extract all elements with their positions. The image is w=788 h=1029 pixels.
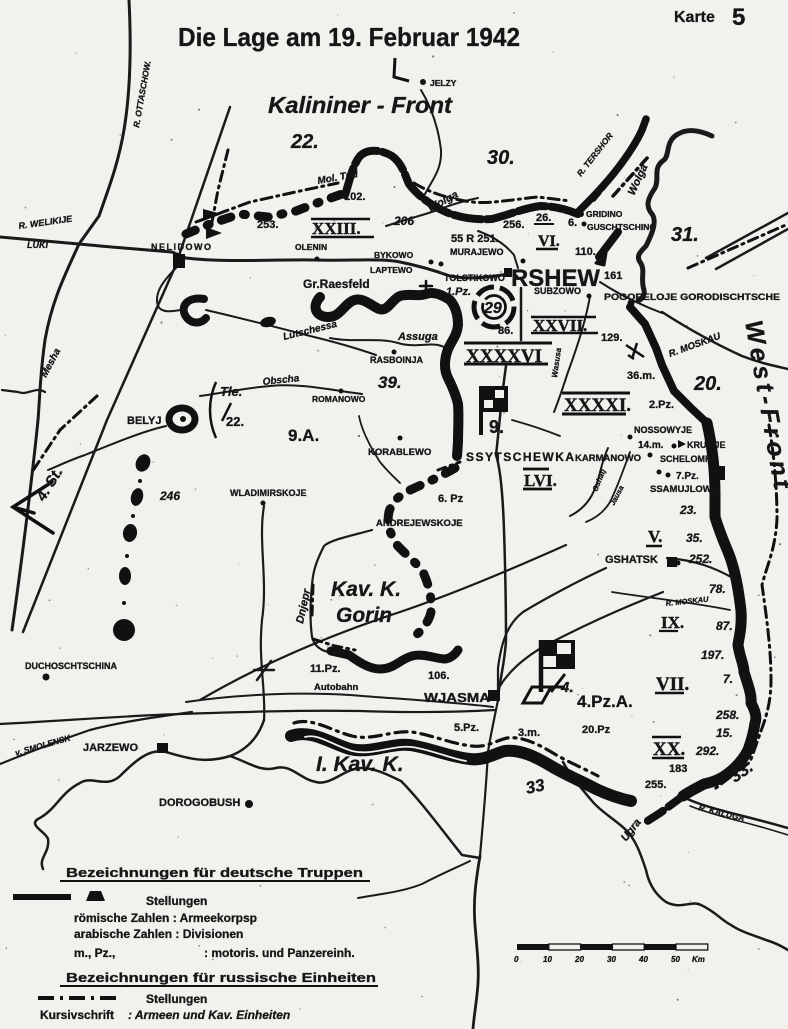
svg-text:JARZEWO: JARZEWO bbox=[83, 742, 138, 754]
svg-text:129.: 129. bbox=[601, 332, 622, 344]
svg-text:MURAJEWO: MURAJEWO bbox=[450, 247, 504, 257]
svg-text:26.: 26. bbox=[536, 212, 551, 224]
svg-text:BELYJ: BELYJ bbox=[127, 415, 161, 427]
svg-text:LUKI: LUKI bbox=[27, 240, 48, 250]
svg-text:LVI.: LVI. bbox=[524, 471, 557, 490]
svg-text:7.Pz.: 7.Pz. bbox=[676, 471, 699, 482]
svg-text:5.Pz.: 5.Pz. bbox=[454, 722, 479, 734]
svg-text:11.Pz.: 11.Pz. bbox=[310, 663, 341, 675]
svg-text:GRIDINO: GRIDINO bbox=[586, 209, 623, 219]
svg-text:Bezeichnungen für russische Ei: Bezeichnungen für russische Einheiten bbox=[66, 971, 376, 985]
svg-text:50: 50 bbox=[671, 955, 680, 964]
svg-text:14.m.: 14.m. bbox=[638, 440, 664, 451]
svg-text:6.: 6. bbox=[568, 217, 577, 229]
svg-text:86.: 86. bbox=[498, 325, 513, 337]
svg-text:DUCHOSCHTSCHINA: DUCHOSCHTSCHINA bbox=[25, 661, 118, 671]
svg-text:23.: 23. bbox=[679, 503, 697, 517]
svg-text:V.: V. bbox=[648, 527, 662, 546]
svg-text:0: 0 bbox=[514, 955, 519, 964]
svg-text:Autobahn: Autobahn bbox=[314, 682, 359, 693]
svg-text:20: 20 bbox=[574, 955, 584, 964]
svg-text:Gr.Raesfeld: Gr.Raesfeld bbox=[303, 277, 370, 291]
svg-text:29: 29 bbox=[483, 300, 502, 317]
svg-text:9.: 9. bbox=[489, 417, 504, 437]
svg-text:POGORELOJE GORODISCHTSCHE: POGORELOJE GORODISCHTSCHE bbox=[604, 292, 780, 302]
svg-text:Karte: Karte bbox=[674, 9, 715, 26]
svg-text:20.Pz: 20.Pz bbox=[582, 724, 611, 736]
svg-text:258.: 258. bbox=[715, 708, 739, 722]
svg-text:22.: 22. bbox=[290, 131, 319, 153]
svg-text:39.: 39. bbox=[378, 373, 402, 392]
svg-text:m., Pz.,: m., Pz., bbox=[74, 946, 115, 960]
svg-text:Kav. K.: Kav. K. bbox=[331, 578, 401, 601]
svg-text:VI.: VI. bbox=[538, 233, 560, 250]
svg-text:LAPTEWO: LAPTEWO bbox=[370, 265, 413, 275]
svg-text:GUSCHTSCHINO: GUSCHTSCHINO bbox=[587, 222, 656, 232]
svg-text:IX.: IX. bbox=[661, 613, 684, 632]
svg-text:1.Pz.: 1.Pz. bbox=[446, 286, 471, 298]
svg-text:10: 10 bbox=[543, 955, 552, 964]
svg-text:Stellungen: Stellungen bbox=[146, 992, 207, 1006]
svg-text:WJASMA: WJASMA bbox=[424, 690, 491, 705]
svg-text:arabische Zahlen : Divisionen: arabische Zahlen : Divisionen bbox=[74, 927, 243, 941]
svg-text:ROMANOWO: ROMANOWO bbox=[312, 394, 366, 404]
svg-text:40: 40 bbox=[638, 955, 648, 964]
svg-text:Kalininer - Front: Kalininer - Front bbox=[268, 92, 453, 118]
svg-text:256.: 256. bbox=[503, 219, 524, 231]
svg-text:WLADIMIRSKOJE: WLADIMIRSKOJE bbox=[230, 488, 307, 498]
svg-text:30.: 30. bbox=[487, 147, 515, 169]
svg-text:SUBZOWO: SUBZOWO bbox=[534, 286, 581, 296]
svg-text:DOROGOBUSH: DOROGOBUSH bbox=[159, 797, 240, 809]
svg-text:31.: 31. bbox=[671, 224, 699, 246]
svg-text:: Armeen und Kav. Einheiten: : Armeen und Kav. Einheiten bbox=[128, 1008, 290, 1022]
svg-text:292.: 292. bbox=[695, 744, 719, 758]
svg-text:206: 206 bbox=[393, 214, 414, 228]
svg-text:6. Pz: 6. Pz bbox=[438, 493, 464, 505]
svg-text:Bezeichnungen für deutsche Tru: Bezeichnungen für deutsche Truppen bbox=[66, 866, 363, 880]
svg-text:87.: 87. bbox=[716, 619, 733, 633]
svg-text:NOSSOWYJE: NOSSOWYJE bbox=[634, 425, 692, 435]
svg-text:Kursivschrift: Kursivschrift bbox=[40, 1008, 114, 1022]
svg-text:4.: 4. bbox=[560, 679, 574, 696]
svg-text:15.: 15. bbox=[716, 726, 733, 740]
svg-text:22.: 22. bbox=[226, 414, 244, 429]
svg-text:Km: Km bbox=[692, 955, 705, 964]
svg-text:GSHATSK: GSHATSK bbox=[605, 554, 658, 566]
svg-text:161: 161 bbox=[604, 270, 622, 282]
svg-text:20.: 20. bbox=[693, 373, 722, 395]
svg-text:KRUTIJE: KRUTIJE bbox=[687, 440, 726, 450]
svg-text:110.: 110. bbox=[575, 246, 596, 258]
svg-text:246: 246 bbox=[159, 489, 180, 503]
svg-text:XXXXI.: XXXXI. bbox=[564, 395, 631, 416]
svg-text:55 R 251.: 55 R 251. bbox=[451, 233, 499, 245]
svg-text:Stellungen: Stellungen bbox=[146, 894, 207, 908]
svg-text:TOLSTIKOWO: TOLSTIKOWO bbox=[444, 273, 505, 283]
svg-text:OLENIN: OLENIN bbox=[295, 242, 327, 252]
svg-text:35.: 35. bbox=[686, 531, 703, 545]
svg-text:3.m.: 3.m. bbox=[518, 727, 540, 739]
svg-text:XXVII.: XXVII. bbox=[533, 316, 587, 335]
svg-text:Gorin: Gorin bbox=[336, 604, 392, 627]
svg-text:255.: 255. bbox=[645, 779, 666, 791]
svg-text:Assuga: Assuga bbox=[397, 331, 438, 343]
svg-text:NELIDOWO: NELIDOWO bbox=[151, 242, 211, 252]
svg-text:4.Pz.A.: 4.Pz.A. bbox=[577, 692, 633, 711]
svg-text:: motoris. und Panzereinh.: : motoris. und Panzereinh. bbox=[204, 946, 355, 960]
svg-text:197.: 197. bbox=[701, 648, 724, 662]
svg-text:KARMANOWO: KARMANOWO bbox=[575, 453, 641, 464]
svg-text:36.m.: 36.m. bbox=[627, 370, 655, 382]
svg-text:9.A.: 9.A. bbox=[288, 426, 319, 445]
svg-text:JELZY: JELZY bbox=[430, 78, 457, 88]
svg-text:2.Pz.: 2.Pz. bbox=[649, 399, 674, 411]
svg-text:Die Lage am 19. Februar 1942: Die Lage am 19. Februar 1942 bbox=[178, 22, 520, 52]
svg-text:ANDREJEWSKOJE: ANDREJEWSKOJE bbox=[376, 518, 463, 529]
svg-text:Tle.: Tle. bbox=[220, 384, 242, 399]
svg-text:BYKOWO: BYKOWO bbox=[374, 250, 414, 260]
svg-text:183: 183 bbox=[669, 763, 687, 775]
svg-text:252.: 252. bbox=[688, 552, 712, 566]
svg-text:5: 5 bbox=[732, 4, 745, 31]
svg-text:SCHELOMKI: SCHELOMKI bbox=[660, 454, 714, 464]
svg-text:253.: 253. bbox=[257, 219, 278, 231]
svg-text:KORABLEWO: KORABLEWO bbox=[368, 447, 431, 458]
svg-text:XXXXVI: XXXXVI bbox=[466, 346, 542, 367]
svg-text:SSAMUJLOWO: SSAMUJLOWO bbox=[650, 484, 719, 495]
svg-text:SSYTSCHEWKA: SSYTSCHEWKA bbox=[466, 450, 574, 464]
svg-text:102.: 102. bbox=[344, 191, 365, 203]
svg-text:30: 30 bbox=[607, 955, 616, 964]
svg-text:106.: 106. bbox=[428, 670, 449, 682]
svg-text:78.: 78. bbox=[709, 582, 726, 596]
svg-text:RASBOINJA: RASBOINJA bbox=[370, 355, 424, 365]
svg-text:I. Kav. K.: I. Kav. K. bbox=[316, 753, 404, 776]
svg-text:römische Zahlen : Armeekorpsp: römische Zahlen : Armeekorpsp bbox=[74, 911, 257, 925]
svg-text:XXIII.: XXIII. bbox=[312, 219, 361, 238]
svg-text:7.: 7. bbox=[723, 672, 733, 686]
